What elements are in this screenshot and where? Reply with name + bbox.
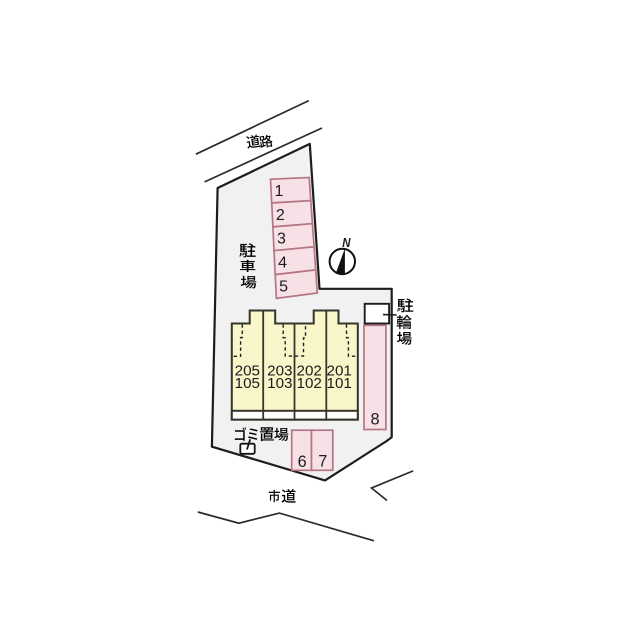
svg-text:105: 105: [235, 375, 260, 392]
svg-text:4: 4: [278, 254, 287, 271]
svg-text:N: N: [342, 236, 351, 250]
svg-text:1: 1: [274, 183, 283, 200]
svg-text:103: 103: [267, 375, 292, 392]
svg-text:2: 2: [276, 207, 285, 224]
svg-text:101: 101: [327, 375, 352, 392]
svg-text:7: 7: [318, 453, 327, 471]
svg-text:3: 3: [277, 231, 286, 248]
svg-text:102: 102: [297, 375, 322, 392]
svg-text:8: 8: [370, 410, 379, 428]
svg-text:5: 5: [279, 278, 288, 295]
svg-text:6: 6: [298, 453, 307, 471]
